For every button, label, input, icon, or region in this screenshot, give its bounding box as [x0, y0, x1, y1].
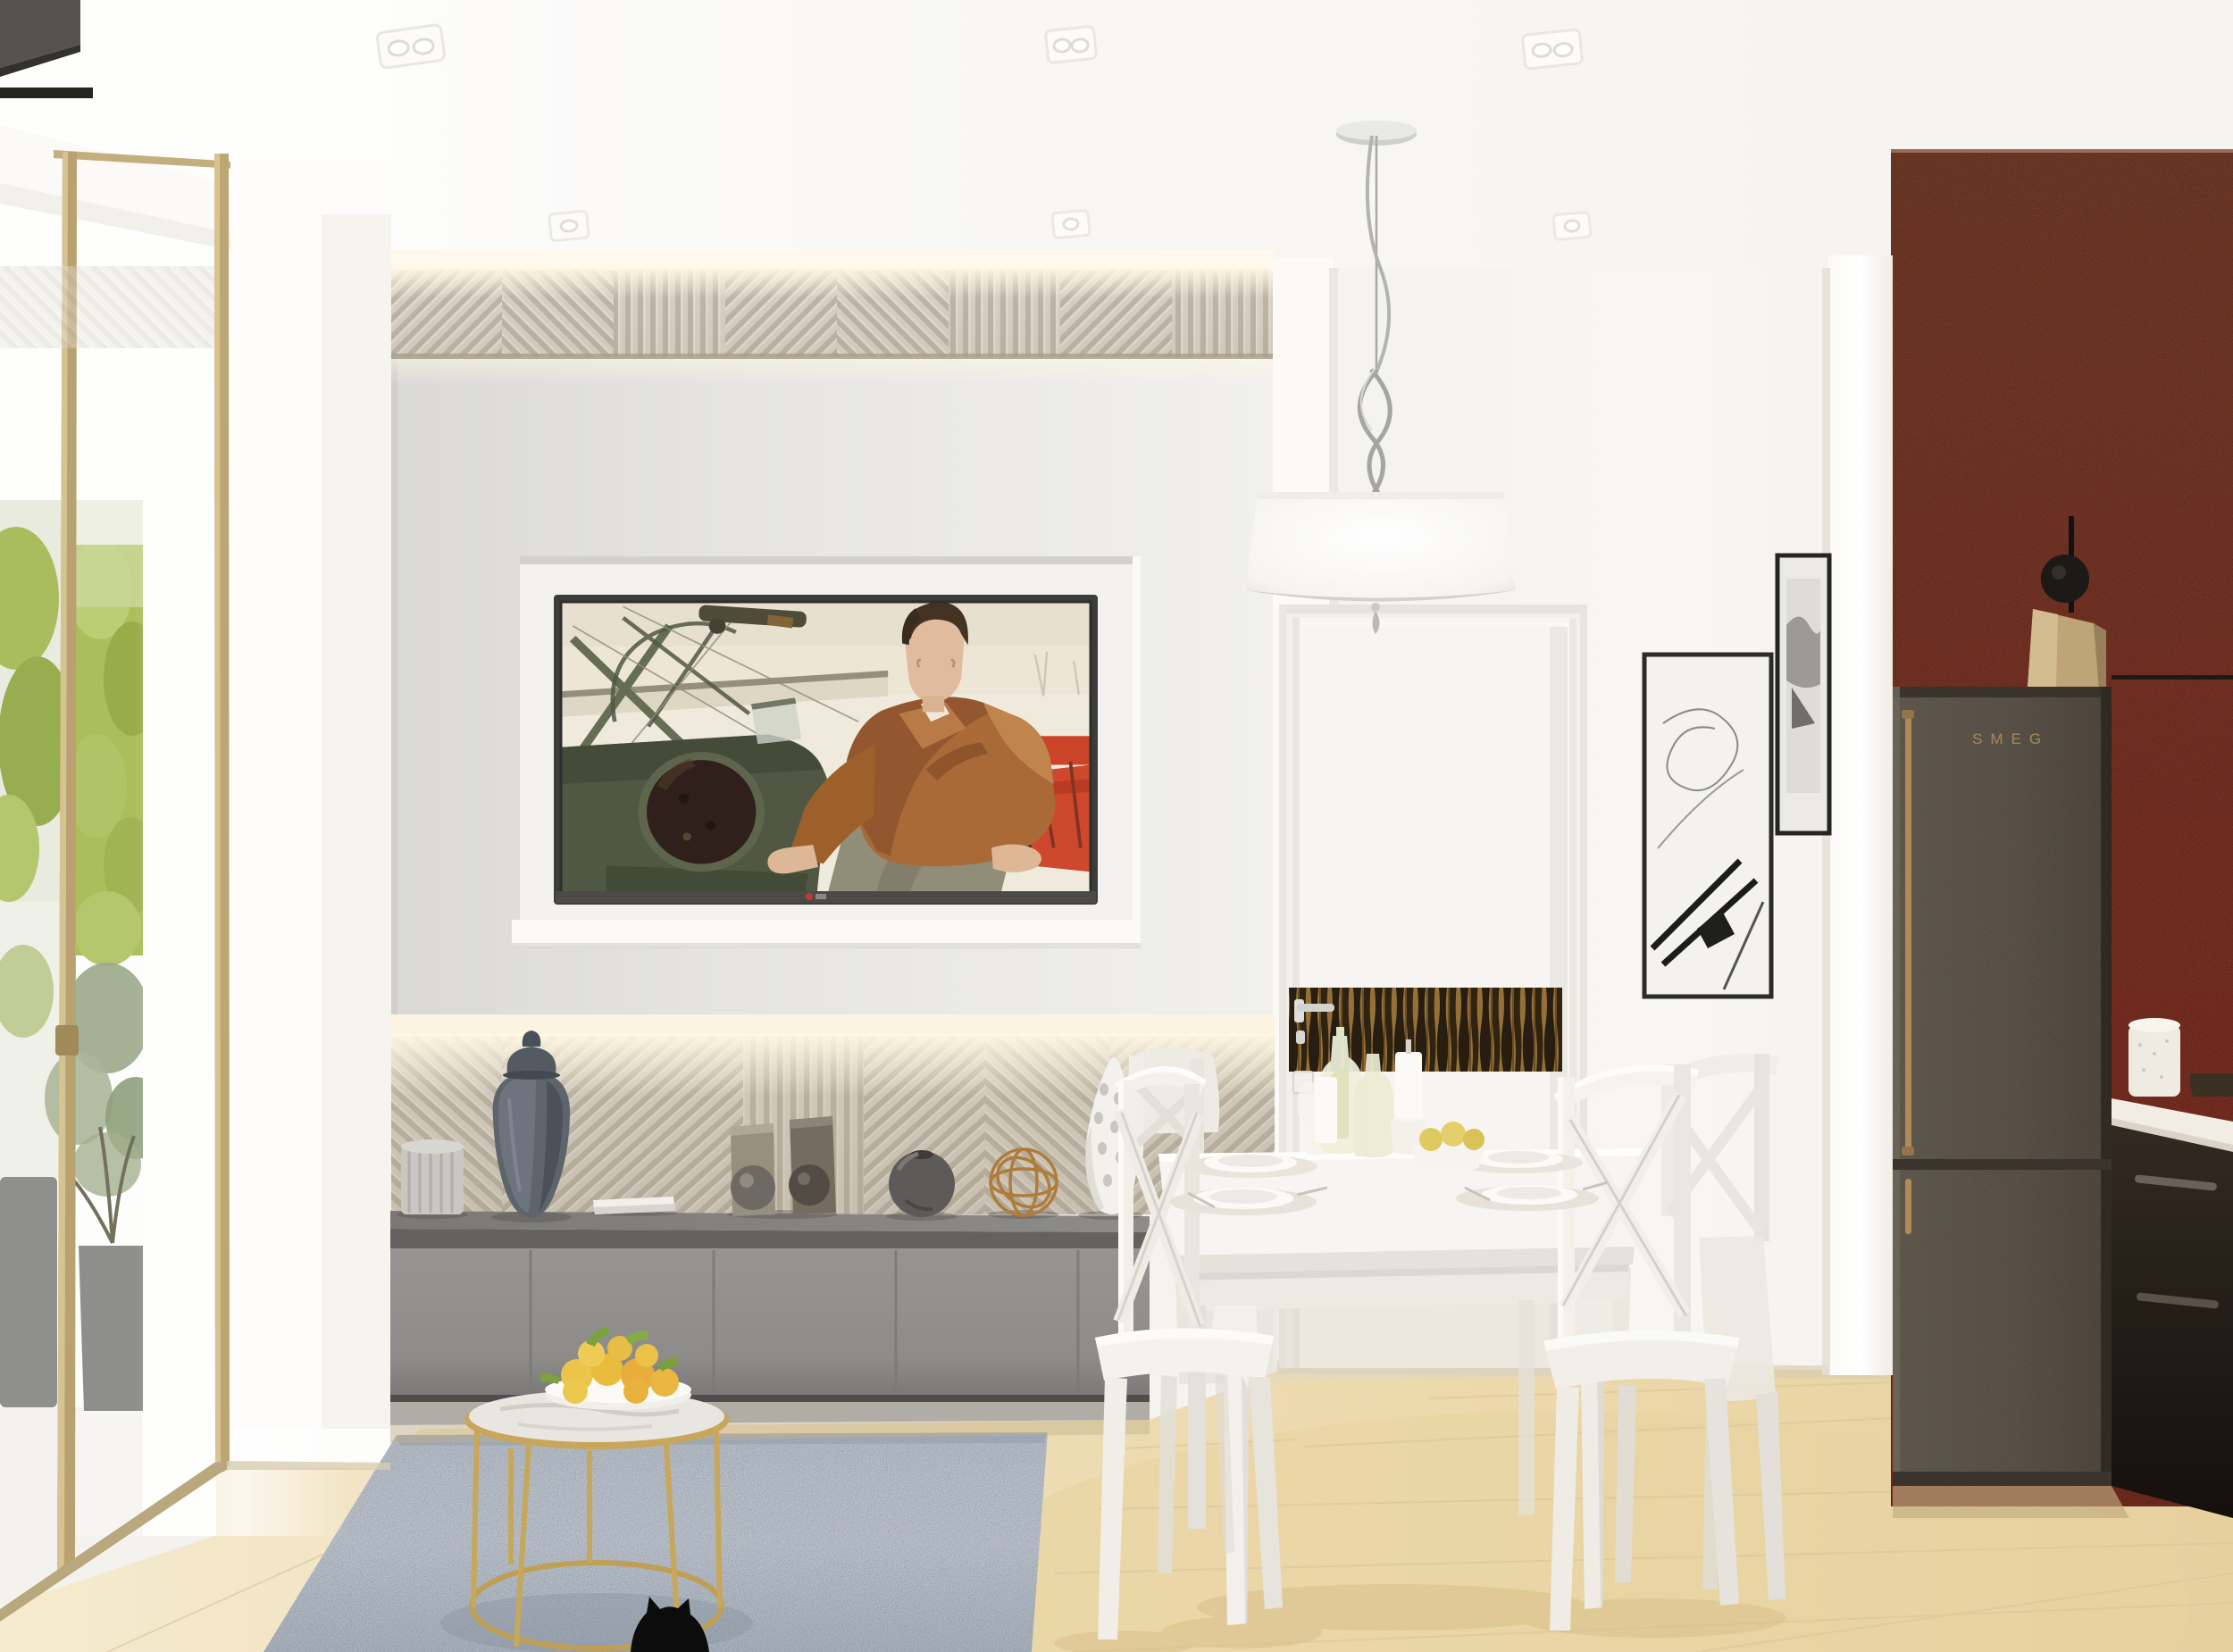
svg-text:SMEG: SMEG	[1972, 730, 2049, 747]
